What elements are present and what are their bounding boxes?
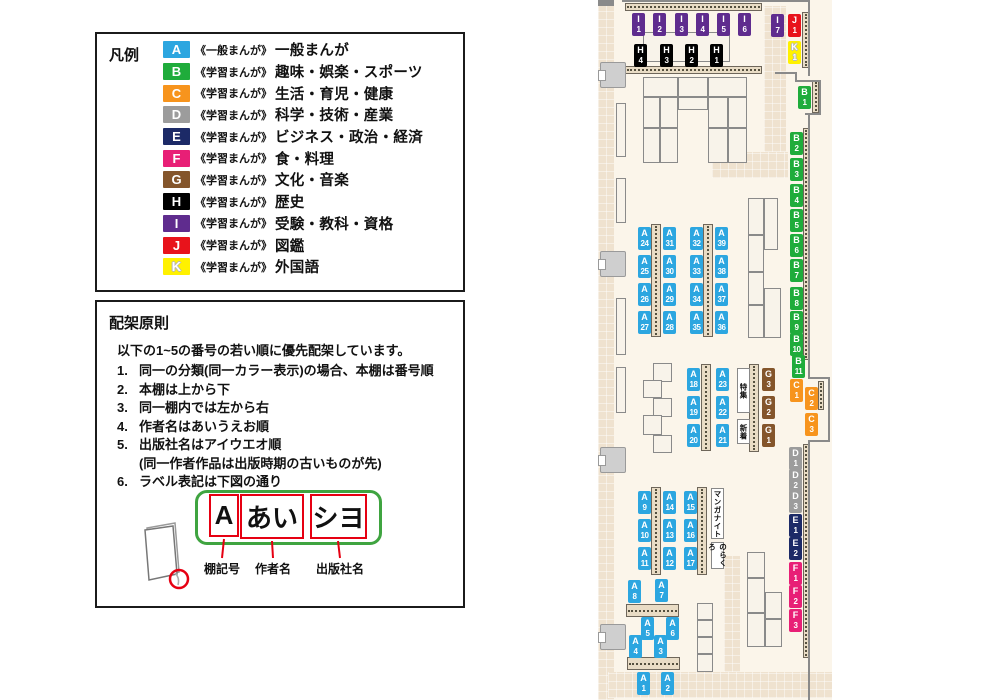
shelf-label-number: 3 — [680, 25, 684, 34]
shelf-label-number: 3 — [810, 425, 814, 434]
shelf-label-number: 1 — [637, 25, 641, 34]
door[interactable] — [600, 624, 626, 650]
shelf-label-F3: F3 — [789, 609, 802, 632]
legend-series: 《学習まんが》 — [195, 64, 272, 80]
legend-category-label: 生活・育児・健康 — [275, 83, 393, 104]
legend-item-K: K《学習まんが》外国語 — [163, 256, 459, 278]
shelf-label-number: 26 — [641, 295, 649, 304]
shelf-label-letter: I — [722, 15, 725, 25]
shelf-table — [765, 619, 782, 647]
wall-shelf-strip — [703, 224, 713, 337]
wall-segment — [828, 377, 830, 442]
legend-chip-F: F — [163, 150, 190, 167]
shelf-table — [708, 77, 747, 97]
shelf-label-number: 8 — [633, 592, 637, 601]
wall-shelf-strip — [627, 657, 680, 670]
shelf-table — [747, 613, 765, 647]
wall-segment — [819, 80, 821, 115]
shelf-label-C3: C3 — [805, 413, 818, 436]
shelf-label-B8: B8 — [790, 287, 803, 310]
floor-path — [724, 556, 740, 672]
shelf-label-letter: A — [666, 313, 673, 323]
legend-chip-K: K — [163, 258, 190, 275]
shelf-label-A34: A34 — [690, 283, 703, 306]
shelf-label-F2: F2 — [789, 585, 802, 608]
shelf-label-A23: A23 — [716, 368, 729, 391]
shelf-label-letter: C — [808, 415, 815, 425]
shelf-label-A8: A8 — [628, 580, 641, 603]
legend-series: 《学習まんが》 — [195, 215, 272, 231]
shelf-label-B5: B5 — [790, 209, 803, 232]
shelf-label-letter: A — [693, 257, 700, 267]
principles-panel: 配架原則 以下の1~5の番号の若い順に優先配架しています。 1.同一の分類(同一… — [95, 300, 465, 608]
shelf-label-H1: H1 — [710, 44, 723, 67]
shelf-table — [616, 367, 626, 413]
rule-number: 1. — [117, 362, 139, 381]
legend-category-label: 文化・音楽 — [275, 169, 349, 190]
shelf-label-E2: E2 — [789, 537, 802, 560]
feature-box-のらくろ: のらくろ — [711, 542, 724, 569]
shelf-label-number: 19 — [690, 408, 698, 417]
shelf-label-A28: A28 — [663, 311, 676, 334]
shelf-table — [616, 298, 626, 355]
shelf-label-letter: A — [718, 257, 725, 267]
shelf-label-A7: A7 — [655, 579, 668, 602]
shelf-label-number: 6 — [671, 629, 675, 638]
shelf-label-A2: A2 — [661, 672, 674, 695]
shelf-label-A20: A20 — [687, 424, 700, 447]
shelf-label-A16: A16 — [684, 519, 697, 542]
label-caption-3: 出版社名 — [316, 560, 364, 577]
shelf-label-number: 6 — [795, 246, 799, 255]
shelf-table — [748, 235, 764, 272]
shelf-label-letter: B — [793, 211, 800, 221]
shelf-label-number: 39 — [718, 239, 726, 248]
shelf-table — [678, 77, 708, 97]
shelf-label-letter: I — [637, 15, 640, 25]
shelf-label-A18: A18 — [687, 368, 700, 391]
shelf-label-number: 24 — [641, 239, 649, 248]
rule-text: 出版社名はアイウエオ順 — [139, 436, 281, 455]
rule-text: 同一棚内では左から右 — [139, 399, 269, 418]
shelf-label-A10: A10 — [638, 519, 651, 542]
wall-segment — [795, 80, 821, 82]
shelf-label-A22: A22 — [716, 396, 729, 419]
shelf-label-A19: A19 — [687, 396, 700, 419]
legend-chip-E: E — [163, 128, 190, 145]
shelf-label-number: 3 — [794, 621, 798, 630]
shelf-label-letter: K — [791, 43, 798, 53]
shelf-label-letter: A — [719, 426, 726, 436]
shelf-label-number: 4 — [639, 56, 643, 65]
shelf-table — [643, 77, 678, 97]
shelf-label-letter: B — [793, 134, 800, 144]
shelf-table — [748, 272, 764, 305]
rule-5-sub: (同一作者作品は出版時期の古いものが先) — [139, 455, 457, 474]
shelf-label-number: 5 — [646, 629, 650, 638]
shelf-label-letter: A — [719, 370, 726, 380]
shelf-table — [660, 97, 678, 128]
wall-shelf-strip — [818, 381, 824, 410]
door[interactable] — [600, 251, 626, 277]
shelf-label-G3: G3 — [762, 368, 775, 391]
legend-series: 《学習まんが》 — [195, 259, 272, 275]
shelf-label-number: 2 — [658, 25, 662, 34]
shelf-label-number: 7 — [776, 26, 780, 35]
shelf-label-letter: A — [666, 493, 673, 503]
shelf-label-letter: F — [793, 564, 799, 574]
shelf-label-A27: A27 — [638, 311, 651, 334]
shelf-label-number: 2 — [794, 481, 798, 490]
shelf-label-letter: A — [632, 637, 639, 647]
shelf-label-letter: A — [693, 313, 700, 323]
shelf-label-letter: B — [793, 335, 800, 345]
shelf-label-number: 15 — [687, 503, 695, 512]
shelf-label-B7: B7 — [790, 259, 803, 282]
legend-category-label: ビジネス・政治・経済 — [275, 126, 423, 147]
rule-2: 2.本棚は上から下 — [117, 381, 457, 400]
shelf-label-A35: A35 — [690, 311, 703, 334]
legend-category-label: 図鑑 — [275, 235, 305, 256]
wall-segment — [808, 442, 810, 700]
shelf-label-number: 31 — [666, 239, 674, 248]
shelf-label-number: 11 — [641, 559, 648, 568]
shelf-label-number: 4 — [701, 25, 705, 34]
shelf-label-H3: H3 — [660, 44, 673, 67]
shelf-table — [748, 305, 764, 338]
feature-box-新着: 新着 — [737, 419, 750, 444]
shelf-label-letter: B — [793, 261, 800, 271]
floor-map: 特集新着マンガナイトのらくろI1I2I3I4I5I6I7J1K1H4H3H2H1… — [598, 0, 832, 700]
shelf-label-number: 5 — [722, 25, 726, 34]
wall-segment — [775, 72, 797, 74]
shelf-label-number: 30 — [666, 267, 674, 276]
shelf-label-A15: A15 — [684, 491, 697, 514]
shelf-label-number: 38 — [718, 267, 726, 276]
legend-chip-D: D — [163, 106, 190, 123]
shelf-table — [697, 603, 713, 620]
legend-series: 《学習まんが》 — [195, 129, 272, 145]
shelf-label-letter: A — [664, 674, 671, 684]
shelf-label-letter: A — [631, 582, 638, 592]
shelf-label-letter: B — [793, 313, 800, 323]
shelf-label-B6: B6 — [790, 234, 803, 257]
shelf-label-letter: A — [690, 398, 697, 408]
shelf-label-I7: I7 — [771, 14, 784, 37]
shelf-label-number: 2 — [690, 56, 694, 65]
rule-text: 本棚は上から下 — [139, 381, 230, 400]
shelf-label-letter: A — [641, 285, 648, 295]
shelf-label-A24: A24 — [638, 227, 651, 250]
legend-chip-G: G — [163, 171, 190, 188]
shelf-table — [747, 578, 765, 613]
shelf-label-letter: A — [658, 581, 665, 591]
shelf-table — [660, 128, 678, 163]
shelf-label-A6: A6 — [666, 617, 679, 640]
shelf-table — [616, 103, 626, 157]
shelf-label-B3: B3 — [790, 158, 803, 181]
shelf-label-letter: G — [765, 398, 772, 408]
rule-number: 4. — [117, 418, 139, 437]
shelf-table — [697, 620, 713, 637]
shelf-label-number: 5 — [795, 221, 799, 230]
shelf-label-letter: I — [776, 16, 779, 26]
shelf-label-letter: A — [687, 521, 694, 531]
shelf-label-letter: A — [719, 398, 726, 408]
shelf-label-number: 7 — [660, 591, 664, 600]
shelf-label-A11: A11 — [638, 547, 651, 570]
shelf-label-letter: A — [718, 313, 725, 323]
shelf-label-J1: J1 — [788, 14, 801, 37]
shelf-table — [697, 637, 713, 654]
shelf-label-I5: I5 — [717, 13, 730, 36]
legend-item-C: C《学習まんが》生活・育児・健康 — [163, 82, 459, 104]
shelf-label-letter: B — [795, 357, 802, 367]
legend-chip-B: B — [163, 63, 190, 80]
shelf-label-letter: A — [641, 521, 648, 531]
shelf-label-number: 34 — [693, 295, 701, 304]
legend-series: 《学習まんが》 — [195, 237, 272, 253]
principles-intro: 以下の1~5の番号の若い順に優先配架しています。 — [117, 340, 410, 359]
shelf-label-I2: I2 — [653, 13, 666, 36]
shelf-label-letter: A — [657, 637, 664, 647]
legend-category-label: 科学・技術・産業 — [275, 104, 393, 125]
feature-box-特集: 特集 — [737, 368, 750, 413]
wall-segment — [622, 0, 810, 2]
shelf-label-B10: B10 — [790, 333, 803, 356]
wall-shelf-strip — [651, 487, 661, 575]
shelf-label-A21: A21 — [716, 424, 729, 447]
legend-series: 《学習まんが》 — [195, 150, 272, 166]
shelf-label-number: 2 — [794, 597, 798, 606]
shelf-label-number: 33 — [693, 267, 701, 276]
shelf-label-letter: I — [680, 15, 683, 25]
shelf-label-D3: D3 — [789, 490, 802, 513]
shelf-label-D1: D1 — [789, 447, 802, 470]
shelf-label-number: 10 — [641, 531, 649, 540]
shelf-label-number: 9 — [795, 323, 799, 332]
shelf-label-A30: A30 — [663, 255, 676, 278]
shelf-label-I6: I6 — [738, 13, 751, 36]
shelf-label-letter: D — [792, 471, 799, 481]
shelf-label-number: 25 — [641, 267, 649, 276]
shelf-table — [765, 592, 782, 619]
wall-segment — [808, 440, 830, 442]
legend-item-I: I《学習まんが》受験・教科・資格 — [163, 213, 459, 235]
shelf-label-A31: A31 — [663, 227, 676, 250]
shelf-table — [764, 288, 781, 338]
shelf-label-number: 14 — [666, 503, 674, 512]
legend-category-label: 一般まんが — [275, 39, 349, 60]
legend-chip-I: I — [163, 215, 190, 232]
rule-text: 同一の分類(同一カラー表示)の場合、本棚は番号順 — [139, 362, 434, 381]
shelf-table — [643, 97, 660, 128]
shelf-label-number: 17 — [687, 559, 695, 568]
floor-path — [598, 0, 614, 700]
shelf-label-letter: G — [765, 426, 772, 436]
shelf-label-number: 23 — [719, 380, 727, 389]
wall-segment — [808, 0, 810, 76]
shelf-label-letter: H — [637, 46, 644, 56]
wall-shelf-strip — [651, 224, 661, 337]
shelf-label-letter: H — [688, 46, 695, 56]
shelf-table — [708, 128, 728, 163]
shelf-label-number: 1 — [793, 26, 797, 35]
legend-series: 《学習まんが》 — [195, 172, 272, 188]
shelf-label-number: 8 — [795, 299, 799, 308]
shelf-label-letter: B — [793, 236, 800, 246]
shelf-label-letter: H — [663, 46, 670, 56]
shelf-label-number: 4 — [795, 196, 799, 205]
shelf-label-letter: A — [640, 674, 647, 684]
shelf-label-E1: E1 — [789, 514, 802, 537]
legend-item-B: B《学習まんが》趣味・娯楽・スポーツ — [163, 61, 459, 83]
shelf-label-letter: I — [743, 15, 746, 25]
shelf-label-letter: H — [713, 46, 720, 56]
wall-segment — [808, 377, 830, 379]
legend-series: 《学習まんが》 — [195, 194, 272, 210]
shelf-label-number: 2 — [794, 549, 798, 558]
shelf-label-letter: A — [687, 493, 694, 503]
rule-number: 2. — [117, 381, 139, 400]
legend-category-label: 外国語 — [275, 256, 319, 277]
legend-item-F: F《学習まんが》食・料理 — [163, 147, 459, 169]
shelf-label-A1: A1 — [637, 672, 650, 695]
shelf-label-letter: A — [690, 370, 697, 380]
shelf-label-number: 37 — [718, 295, 726, 304]
legend-title: 凡例 — [109, 44, 139, 65]
shelf-label-letter: F — [793, 587, 799, 597]
shelf-label-letter: J — [792, 16, 797, 26]
shelf-label-B4: B4 — [790, 184, 803, 207]
principles-rules: 1.同一の分類(同一カラー表示)の場合、本棚は番号順2.本棚は上から下3.同一棚… — [117, 362, 457, 492]
shelf-table — [643, 415, 662, 435]
shelf-label-C2: C2 — [805, 387, 818, 410]
legend-item-A: A《一般まんが》一般まんが — [163, 39, 459, 61]
shelf-label-B11: B11 — [792, 355, 805, 378]
rule-text: 作者名はあいうえお順 — [139, 418, 269, 437]
shelf-label-letter: A — [693, 285, 700, 295]
shelf-label-number: 4 — [634, 647, 638, 656]
shelf-label-I3: I3 — [675, 13, 688, 36]
shelf-label-letter: A — [644, 619, 651, 629]
shelf-table — [764, 198, 778, 250]
door[interactable] — [600, 447, 626, 473]
legend-items: A《一般まんが》一般まんがB《学習まんが》趣味・娯楽・スポーツC《学習まんが》生… — [163, 39, 459, 278]
shelf-table — [748, 198, 764, 235]
shelf-table — [643, 128, 660, 163]
shelf-label-number: 2 — [795, 144, 799, 153]
shelf-label-A36: A36 — [715, 311, 728, 334]
label-diagram: Aあいシヨ 棚記号作者名出版社名 — [97, 487, 467, 607]
shelf-label-letter: A — [666, 549, 673, 559]
legend-panel: 凡例 A《一般まんが》一般まんがB《学習まんが》趣味・娯楽・スポーツC《学習まん… — [95, 32, 465, 292]
legend-item-D: D《学習まんが》科学・技術・産業 — [163, 104, 459, 126]
shelf-label-number: 2 — [666, 684, 670, 693]
shelf-label-letter: A — [641, 257, 648, 267]
shelf-label-A37: A37 — [715, 283, 728, 306]
wall-shelf-strip — [625, 66, 762, 74]
shelf-table — [643, 380, 662, 398]
shelf-label-letter: A — [718, 229, 725, 239]
shelf-label-B1: B1 — [798, 86, 811, 109]
shelf-label-number: 2 — [810, 399, 814, 408]
wall-shelf-strip — [625, 3, 762, 11]
shelf-label-number: 1 — [715, 56, 719, 65]
door[interactable] — [600, 62, 626, 88]
shelf-table — [747, 552, 765, 578]
shelf-label-number: 10 — [793, 345, 801, 354]
shelf-label-number: 6 — [743, 25, 747, 34]
shelf-label-letter: A — [666, 521, 673, 531]
rule-1: 1.同一の分類(同一カラー表示)の場合、本棚は番号順 — [117, 362, 457, 381]
shelf-label-number: 3 — [767, 380, 771, 389]
shelf-label-number: 1 — [794, 574, 798, 583]
shelf-label-number: 11 — [795, 367, 802, 376]
shelf-label-G1: G1 — [762, 424, 775, 447]
shelf-label-number: 9 — [643, 503, 647, 512]
legend-series: 《学習まんが》 — [195, 107, 272, 123]
shelf-label-I1: I1 — [632, 13, 645, 36]
shelf-label-number: 13 — [666, 531, 674, 540]
rule-number: 5. — [117, 436, 139, 455]
shelf-label-number: 21 — [719, 436, 727, 445]
label-caption-2: 作者名 — [255, 560, 291, 577]
wall-segment — [598, 0, 614, 6]
shelf-label-letter: A — [669, 619, 676, 629]
rule-number: 3. — [117, 399, 139, 418]
legend-item-J: J《学習まんが》図鑑 — [163, 234, 459, 256]
shelf-label-letter: A — [641, 313, 648, 323]
shelf-label-letter: A — [641, 549, 648, 559]
shelf-label-D2: D2 — [789, 469, 802, 492]
shelf-label-letter: A — [687, 549, 694, 559]
shelf-label-number: 22 — [719, 408, 727, 417]
shelf-label-number: 27 — [641, 323, 649, 332]
shelf-label-G2: G2 — [762, 396, 775, 419]
shelf-label-letter: E — [792, 516, 798, 526]
shelf-label-number: 29 — [666, 295, 674, 304]
shelf-label-A17: A17 — [684, 547, 697, 570]
shelf-label-number: 1 — [803, 98, 807, 107]
shelf-label-I4: I4 — [696, 13, 709, 36]
shelf-label-number: 20 — [690, 436, 698, 445]
shelf-table — [728, 97, 747, 128]
legend-chip-A: A — [163, 41, 190, 58]
shelf-label-number: 2 — [767, 408, 771, 417]
shelf-label-letter: A — [693, 229, 700, 239]
wall-shelf-strip — [812, 80, 819, 113]
rule-5: 5.出版社名はアイウエオ順 — [117, 436, 457, 455]
shelf-label-A12: A12 — [663, 547, 676, 570]
shelf-label-A32: A32 — [690, 227, 703, 250]
wall-segment — [808, 113, 810, 379]
shelf-label-H2: H2 — [685, 44, 698, 67]
legend-chip-H: H — [163, 193, 190, 210]
shelf-table — [728, 128, 747, 163]
feature-box-マンガナイト: マンガナイト — [711, 488, 724, 539]
shelf-label-A9: A9 — [638, 491, 651, 514]
shelf-label-letter: G — [765, 370, 772, 380]
shelf-label-number: 3 — [659, 647, 663, 656]
shelf-label-number: 12 — [666, 559, 674, 568]
shelf-label-C1: C1 — [790, 379, 803, 402]
shelf-label-number: 16 — [687, 531, 695, 540]
shelf-label-letter: A — [718, 285, 725, 295]
shelf-table — [653, 435, 672, 453]
shelf-label-letter: F — [793, 611, 799, 621]
shelf-label-letter: D — [792, 492, 799, 502]
